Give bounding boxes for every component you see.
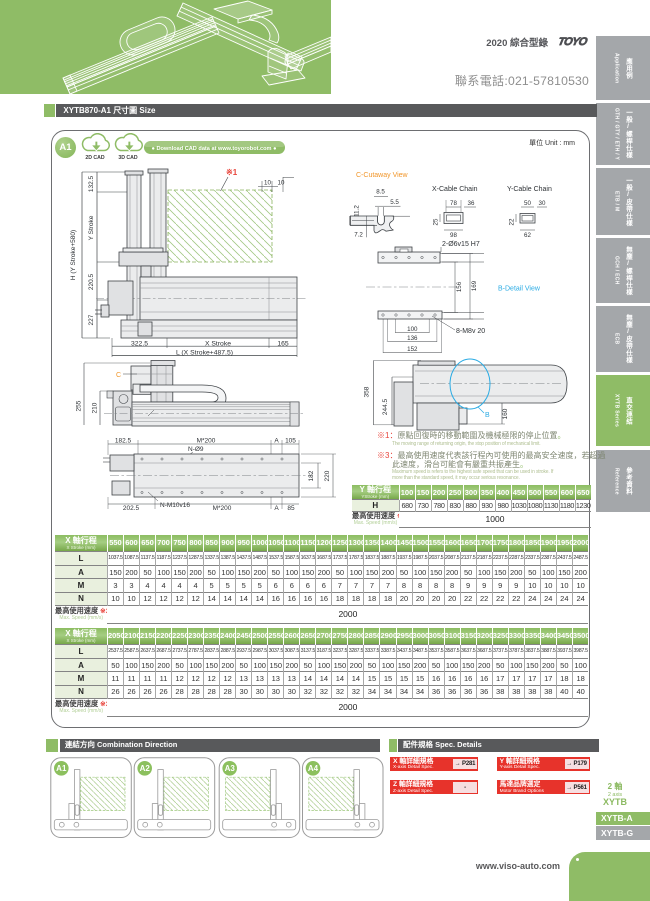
svg-text:TOYO: TOYO bbox=[557, 36, 589, 48]
svg-text:A2: A2 bbox=[140, 764, 151, 773]
svg-text:2D CAD: 2D CAD bbox=[85, 155, 105, 161]
svg-text:3D CAD: 3D CAD bbox=[118, 155, 138, 161]
svg-text:A1: A1 bbox=[56, 764, 67, 773]
svg-text:● Download CAD data at www.toy: ● Download CAD data at www.toyorobot.com… bbox=[152, 146, 277, 152]
svg-text:A3: A3 bbox=[225, 764, 236, 773]
svg-text:A4: A4 bbox=[308, 764, 319, 773]
